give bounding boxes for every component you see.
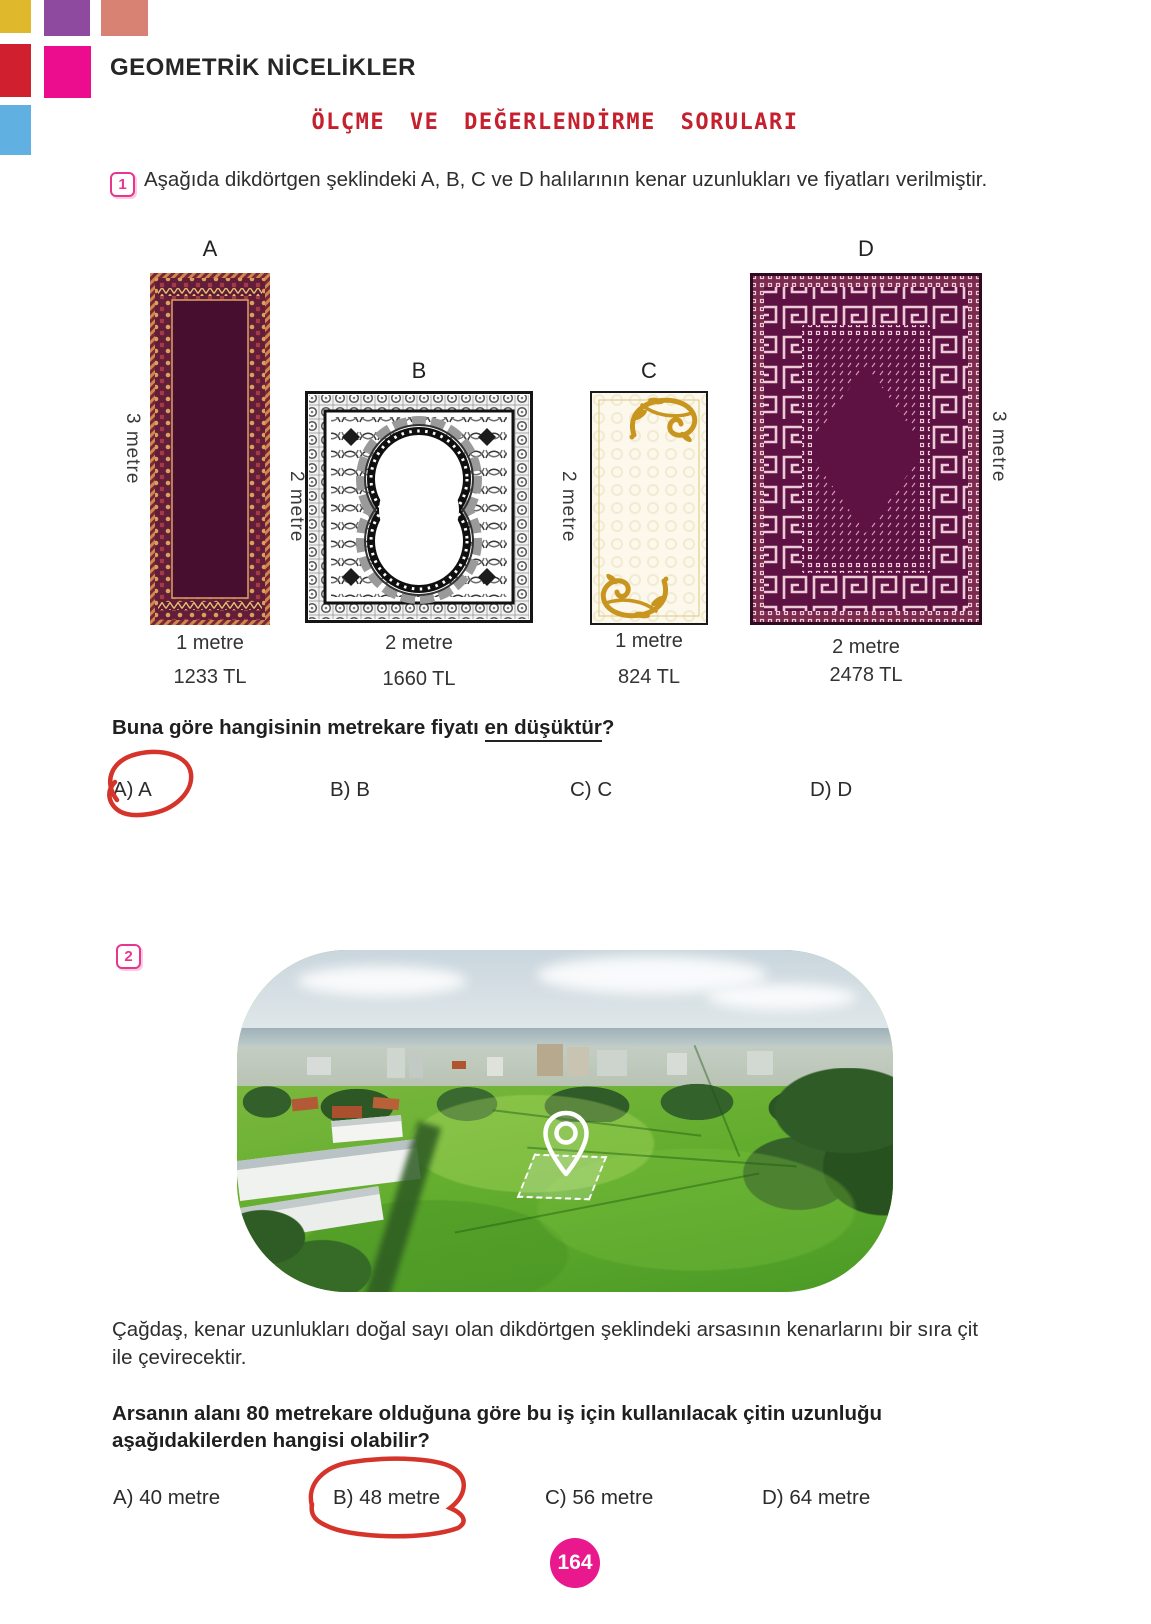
corner-square-magenta [44,46,91,98]
carpet-d-height-label: 3 metre [986,385,1010,509]
carpet-a-width-label: 1 metre [150,632,270,655]
q2-option-a[interactable]: A) 40 metre [113,1486,220,1510]
question-1-number-badge: 1 [110,172,135,197]
carpet-d-width-label: 2 metre [750,636,982,659]
carpet-d-price: 2478 TL [750,664,982,687]
corner-square-purple [44,0,90,36]
q1-option-c[interactable]: C) C [570,778,612,802]
corner-square-salmon [101,0,148,36]
carpet-c-graphic [590,391,708,625]
location-pin-icon [535,1108,597,1180]
carpet-d-letter: D [750,236,982,262]
section-title: ÖLÇME VE DEĞERLENDİRME SORULARI [0,110,1110,135]
carpet-c-width-label: 1 metre [590,630,708,653]
carpet-c-height-label: 2 metre [556,447,580,567]
corner-square-red [0,44,31,97]
carpet-b-height-label: 2 metre [284,447,308,567]
question-1-prompt: Buna göre hangisinin metrekare fiyatı en… [112,714,1012,741]
unit-title: GEOMETRİK NİCELİKLER [110,54,416,82]
photo-left-shrubs [237,1188,375,1292]
answer-circle-annotation-q2 [296,1448,484,1544]
carpet-a-height-label: 3 metre [120,389,144,509]
question-2-prompt: Arsanın alanı 80 metrekare olduğuna göre… [112,1400,1024,1454]
carpet-a-price: 1233 TL [150,666,270,689]
corner-square-yellow [0,0,31,33]
q2-option-d[interactable]: D) 64 metre [762,1486,870,1510]
carpet-b-graphic [305,391,533,623]
carpet-b-letter: B [305,358,533,384]
q1-option-b[interactable]: B) B [330,778,370,802]
prompt-underlined: en düşüktür [485,716,602,742]
photo-mountains [237,1028,893,1048]
prompt-prefix: Buna göre hangisinin metrekare fiyatı [112,716,485,739]
land-photo [237,950,893,1292]
question-1-text: Aşağıda dikdörtgen şeklindeki A, B, C ve… [144,168,987,191]
carpet-c-price: 824 TL [590,666,708,689]
carpet-a-letter: A [150,236,270,262]
carpet-a-graphic [150,273,270,625]
textbook-page: GEOMETRİK NİCELİKLER ÖLÇME VE DEĞERLENDİ… [0,0,1151,1624]
prompt-suffix: ? [602,716,615,739]
q1-option-d[interactable]: D) D [810,778,852,802]
carpet-b-price: 1660 TL [305,668,533,691]
question-1-intro: 1Aşağıda dikdörtgen şeklindeki A, B, C v… [110,166,1002,197]
question-2-passage: Çağdaş, kenar uzunlukları doğal sayı ola… [112,1316,1004,1372]
carpet-c-letter: C [590,358,708,384]
carpet-b-width-label: 2 metre [305,632,533,655]
carpet-d-graphic [750,273,982,625]
page-number-badge: 164 [550,1538,600,1588]
q2-option-c[interactable]: C) 56 metre [545,1486,653,1510]
question-2-number-badge: 2 [116,944,141,969]
answer-circle-annotation-q1 [95,744,203,828]
